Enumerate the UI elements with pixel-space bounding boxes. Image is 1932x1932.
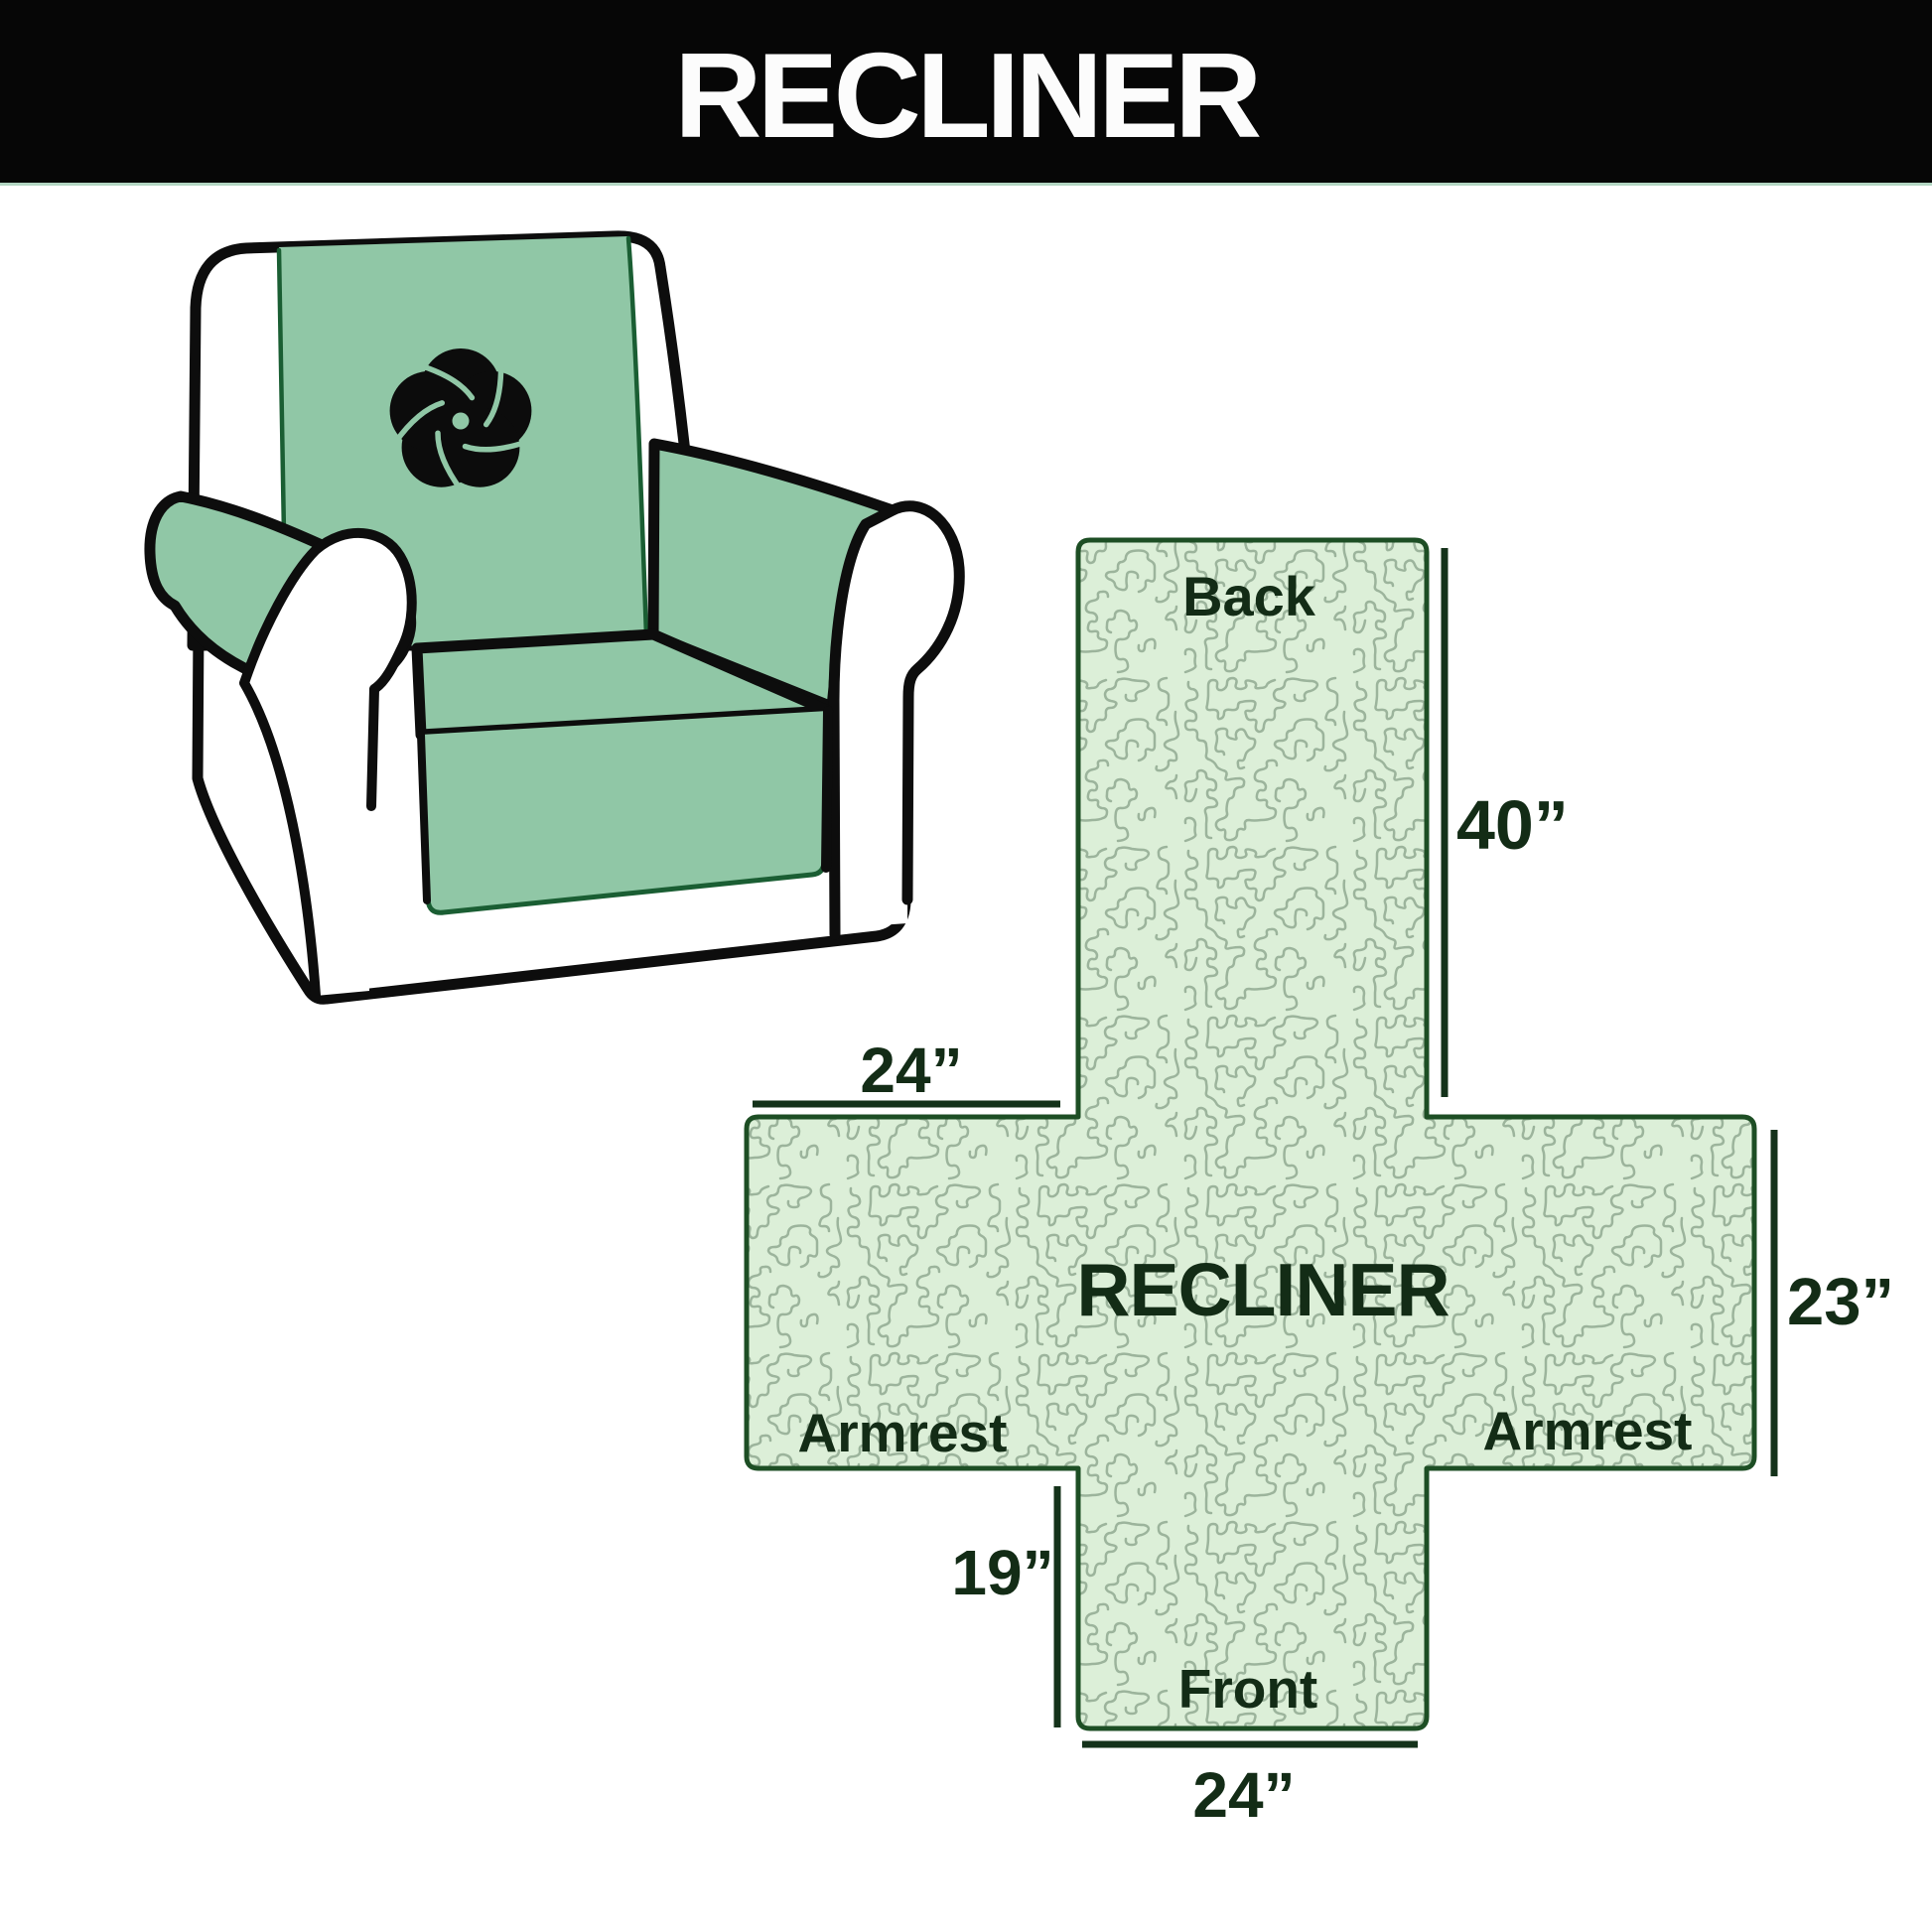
svg-text:RECLINER: RECLINER [1076, 1248, 1449, 1331]
svg-text:23”: 23” [1787, 1265, 1894, 1339]
svg-text:19”: 19” [951, 1537, 1053, 1608]
svg-text:Armrest: Armrest [1483, 1400, 1693, 1461]
svg-text:Back: Back [1182, 565, 1316, 627]
svg-text:RECLINER: RECLINER [674, 28, 1260, 163]
svg-text:24”: 24” [860, 1035, 962, 1106]
svg-text:Front: Front [1178, 1658, 1318, 1720]
svg-text:Armrest: Armrest [798, 1402, 1008, 1463]
svg-text:40”: 40” [1456, 786, 1569, 864]
svg-text:24”: 24” [1192, 1759, 1295, 1831]
